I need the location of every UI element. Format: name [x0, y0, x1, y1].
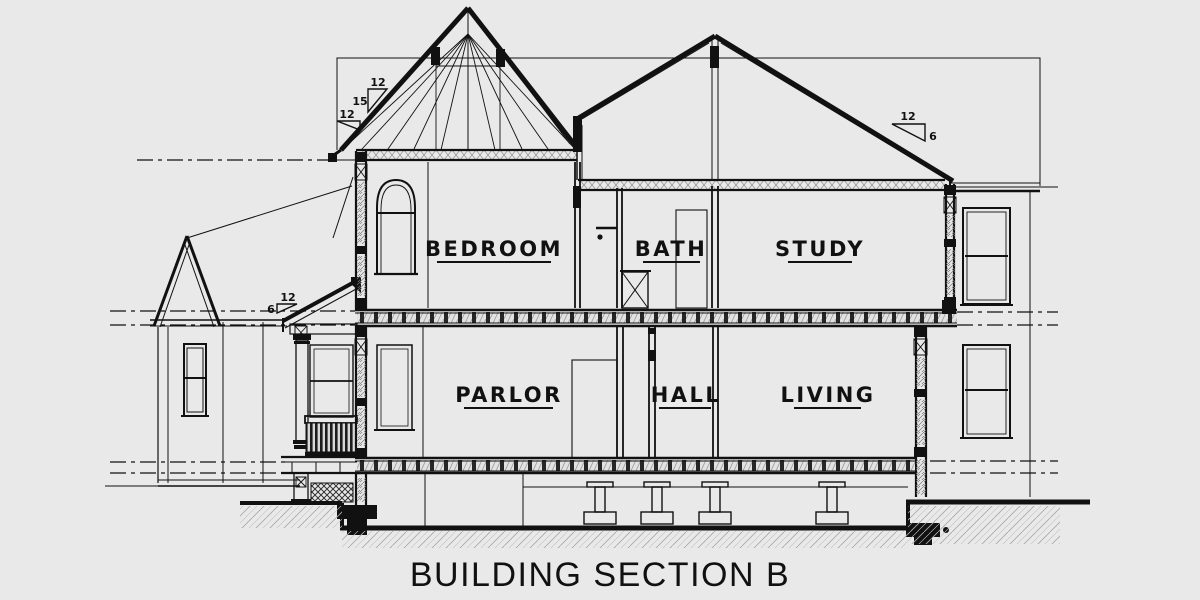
- room-label-bath: BATH: [635, 237, 708, 261]
- pitch-rise: 6: [267, 303, 275, 316]
- room-label-hall: HALL: [651, 383, 722, 407]
- first-floor-band: [355, 458, 915, 473]
- building-section-drawing: 12 15 12 12 6 12 6 BEDROOM BATH STUDY PA…: [0, 0, 1200, 600]
- pitch-run: 12: [339, 108, 354, 121]
- gable-ceiling-band: [578, 180, 945, 190]
- room-labels-upper: BEDROOM BATH STUDY: [425, 237, 865, 262]
- room-label-study: STUDY: [775, 237, 865, 261]
- pitch-rise: 15: [352, 95, 367, 108]
- pitch-run: 12: [280, 291, 295, 304]
- room-labels-lower: PARLOR HALL LIVING: [455, 383, 875, 408]
- turret-ceiling-band: [356, 150, 577, 160]
- drawing-title: BUILDING SECTION B: [410, 556, 790, 594]
- pitch-run: 12: [370, 76, 385, 89]
- room-label-living: LIVING: [780, 383, 875, 407]
- pitch-run: 12: [900, 110, 915, 123]
- room-label-parlor: PARLOR: [455, 383, 563, 407]
- room-label-bedroom: BEDROOM: [425, 237, 563, 261]
- pitch-rise: 6: [929, 130, 937, 143]
